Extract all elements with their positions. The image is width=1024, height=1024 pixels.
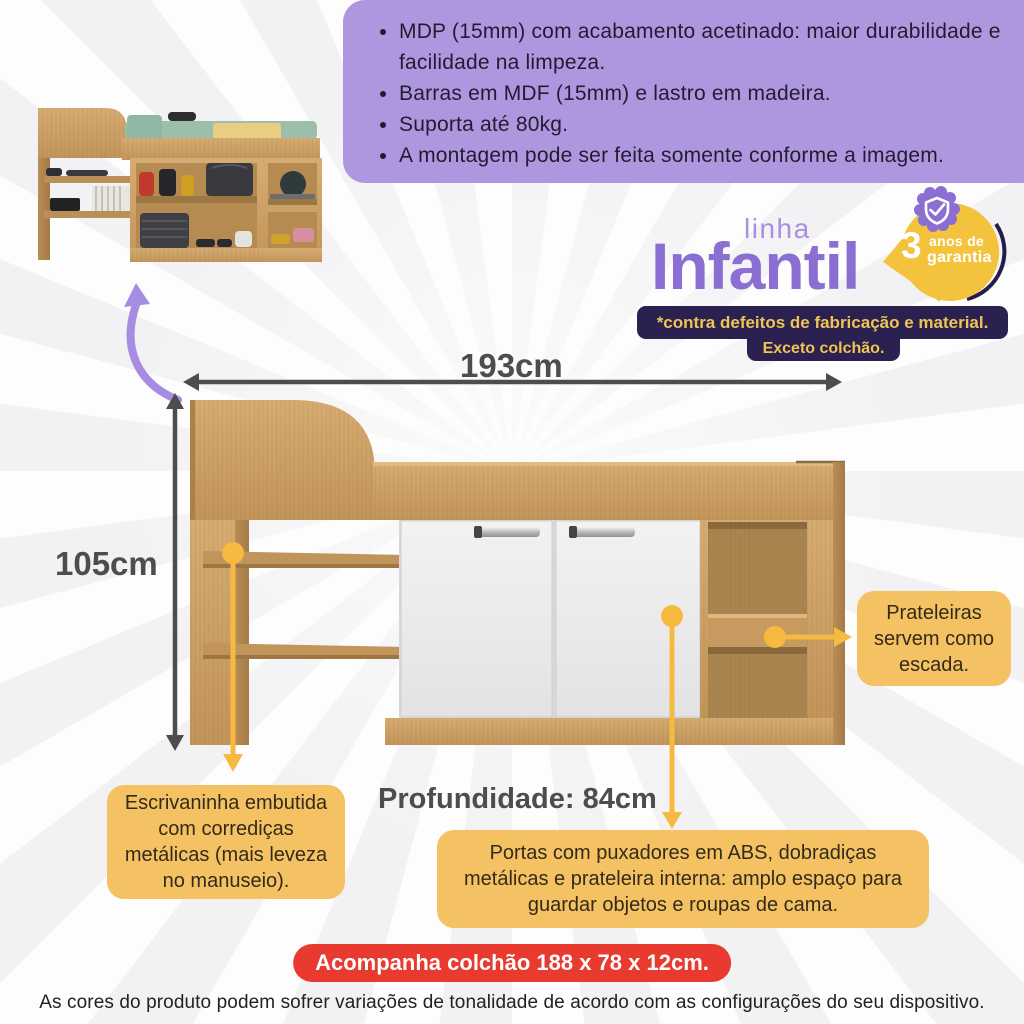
bullet-item: Barras em MDF (15mm) e lastro em madeira… <box>399 78 1010 109</box>
curved-arrow-icon <box>124 283 178 400</box>
footer-disclaimer: As cores do produto podem sofrer variaçõ… <box>0 992 1024 1014</box>
width-dimension-label: 193cm <box>460 347 563 385</box>
bullet-item: A montagem pode ser feita somente confor… <box>399 140 1010 171</box>
bullet-item: Suporta até 80kg. <box>399 109 1010 140</box>
callout-desk: Escrivaninha embutida com corrediças met… <box>107 785 345 899</box>
warranty-note-line2: Exceto colchão. <box>747 337 900 361</box>
warranty-note-line1: *contra defeitos de fabricação e materia… <box>637 306 1008 339</box>
bullet-item: MDP (15mm) com acabamento acetinado: mai… <box>399 16 1010 78</box>
depth-dimension-label: Profundidade: 84cm <box>378 783 657 816</box>
badge-text-1: anos de <box>929 233 984 249</box>
product-photo <box>38 108 322 262</box>
materials-info-box: MDP (15mm) com acabamento acetinado: mai… <box>343 0 1024 183</box>
brand-line-main: Infantil <box>651 228 859 304</box>
callout-shelves: Prateleiras servem como escada. <box>857 591 1011 686</box>
mattress-included-badge: Acompanha colchão 188 x 78 x 12cm. <box>293 944 731 982</box>
materials-bullet-list: MDP (15mm) com acabamento acetinado: mai… <box>377 16 1010 171</box>
height-dimension-label: 105cm <box>55 545 158 583</box>
height-dimension-arrow <box>166 393 184 751</box>
furniture-diagram <box>190 400 845 745</box>
badge-text-2: garantia <box>927 249 992 267</box>
callout-doors: Portas com puxadores em ABS, dobradiças … <box>437 830 929 928</box>
badge-number: 3 <box>901 225 922 267</box>
